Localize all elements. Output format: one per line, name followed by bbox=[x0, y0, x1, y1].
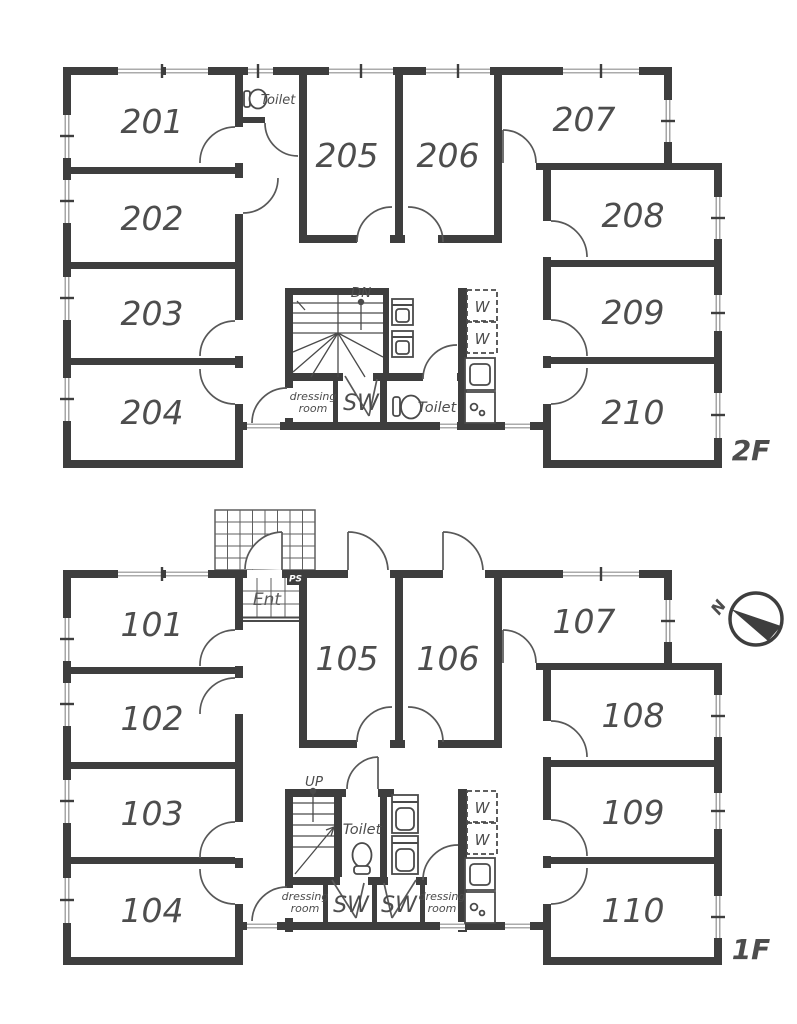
washer-label-2f-1: W bbox=[475, 298, 491, 316]
floor-label-2f: 2F bbox=[732, 434, 771, 467]
shower-label-1f-2: SW bbox=[381, 893, 418, 918]
room-label-106: 106 bbox=[417, 639, 480, 678]
toilet-icon-1f bbox=[353, 843, 372, 874]
room-label-205: 205 bbox=[316, 136, 379, 175]
compass-north-label: N bbox=[707, 596, 731, 618]
entrance-label: Ent bbox=[253, 590, 283, 610]
pipe-shaft-box: PS bbox=[287, 571, 304, 585]
washbasin-2f bbox=[465, 358, 495, 390]
room-label-110: 110 bbox=[602, 891, 665, 930]
floor2-labels: 201 202 203 204 205 206 207 208 209 210 … bbox=[121, 93, 771, 467]
washer-label-2f-2: W bbox=[475, 330, 491, 348]
room-label-204: 204 bbox=[121, 393, 184, 432]
shower-label-1f-1: SW bbox=[333, 893, 370, 918]
toilet-label-2f-lower: Toilet bbox=[418, 400, 458, 416]
floorplan-page: 201 202 203 204 205 206 207 208 209 210 … bbox=[0, 0, 797, 1024]
dressing-room-label-2f-line2: room bbox=[299, 402, 328, 415]
sink-counter-1f bbox=[465, 892, 495, 923]
room-label-209: 209 bbox=[602, 293, 665, 332]
stairs-label-2f: DN bbox=[351, 285, 372, 301]
floor-label-1f: 1F bbox=[732, 933, 771, 966]
floor1-labels: 101 102 103 104 105 106 107 108 109 110 … bbox=[121, 590, 771, 966]
shelf-unit-2f-2 bbox=[392, 331, 413, 357]
porch-tiles bbox=[215, 510, 315, 570]
shelf-unit-2f bbox=[392, 299, 413, 325]
room-label-206: 206 bbox=[417, 136, 480, 175]
toilet-label-2f-upper: Toilet bbox=[261, 93, 297, 108]
compass: N bbox=[707, 593, 782, 645]
washbasin-1f-lower bbox=[392, 836, 418, 874]
room-label-203: 203 bbox=[121, 294, 184, 333]
floor-2f: 201 202 203 204 205 206 207 208 209 210 … bbox=[60, 64, 770, 468]
dressing-room-label-1f-left-line2: room bbox=[291, 902, 320, 915]
room-label-101: 101 bbox=[121, 605, 184, 644]
room-label-210: 210 bbox=[602, 393, 665, 432]
room-label-107: 107 bbox=[553, 602, 616, 641]
stairs-label-1f: UP bbox=[305, 774, 324, 790]
washbasin-1f-right bbox=[465, 858, 495, 890]
floor-1f: PS bbox=[60, 510, 782, 966]
floor1-staircase bbox=[293, 788, 334, 874]
room-label-104: 104 bbox=[121, 891, 184, 930]
floor2-staircase bbox=[293, 295, 383, 377]
toilet-label-1f: Toilet bbox=[343, 822, 383, 838]
floorplan-drawing: 201 202 203 204 205 206 207 208 209 210 … bbox=[0, 0, 797, 1024]
room-label-108: 108 bbox=[602, 696, 665, 735]
room-label-208: 208 bbox=[602, 196, 665, 235]
room-label-105: 105 bbox=[316, 639, 379, 678]
room-label-102: 102 bbox=[121, 699, 184, 738]
room-label-207: 207 bbox=[553, 100, 616, 139]
room-label-103: 103 bbox=[121, 794, 184, 833]
room-label-202: 202 bbox=[121, 199, 184, 238]
room-label-109: 109 bbox=[602, 793, 665, 832]
room-label-201: 201 bbox=[121, 102, 184, 141]
sink-counter-2f bbox=[465, 392, 495, 423]
pipe-shaft-label: PS bbox=[289, 575, 302, 585]
washbasin-1f-upper bbox=[392, 795, 418, 833]
shower-label-2f: SW bbox=[343, 391, 380, 416]
washer-label-1f-1: W bbox=[475, 799, 491, 817]
dressing-room-label-1f-right-line2: room bbox=[428, 902, 457, 915]
washer-label-1f-2: W bbox=[475, 831, 491, 849]
